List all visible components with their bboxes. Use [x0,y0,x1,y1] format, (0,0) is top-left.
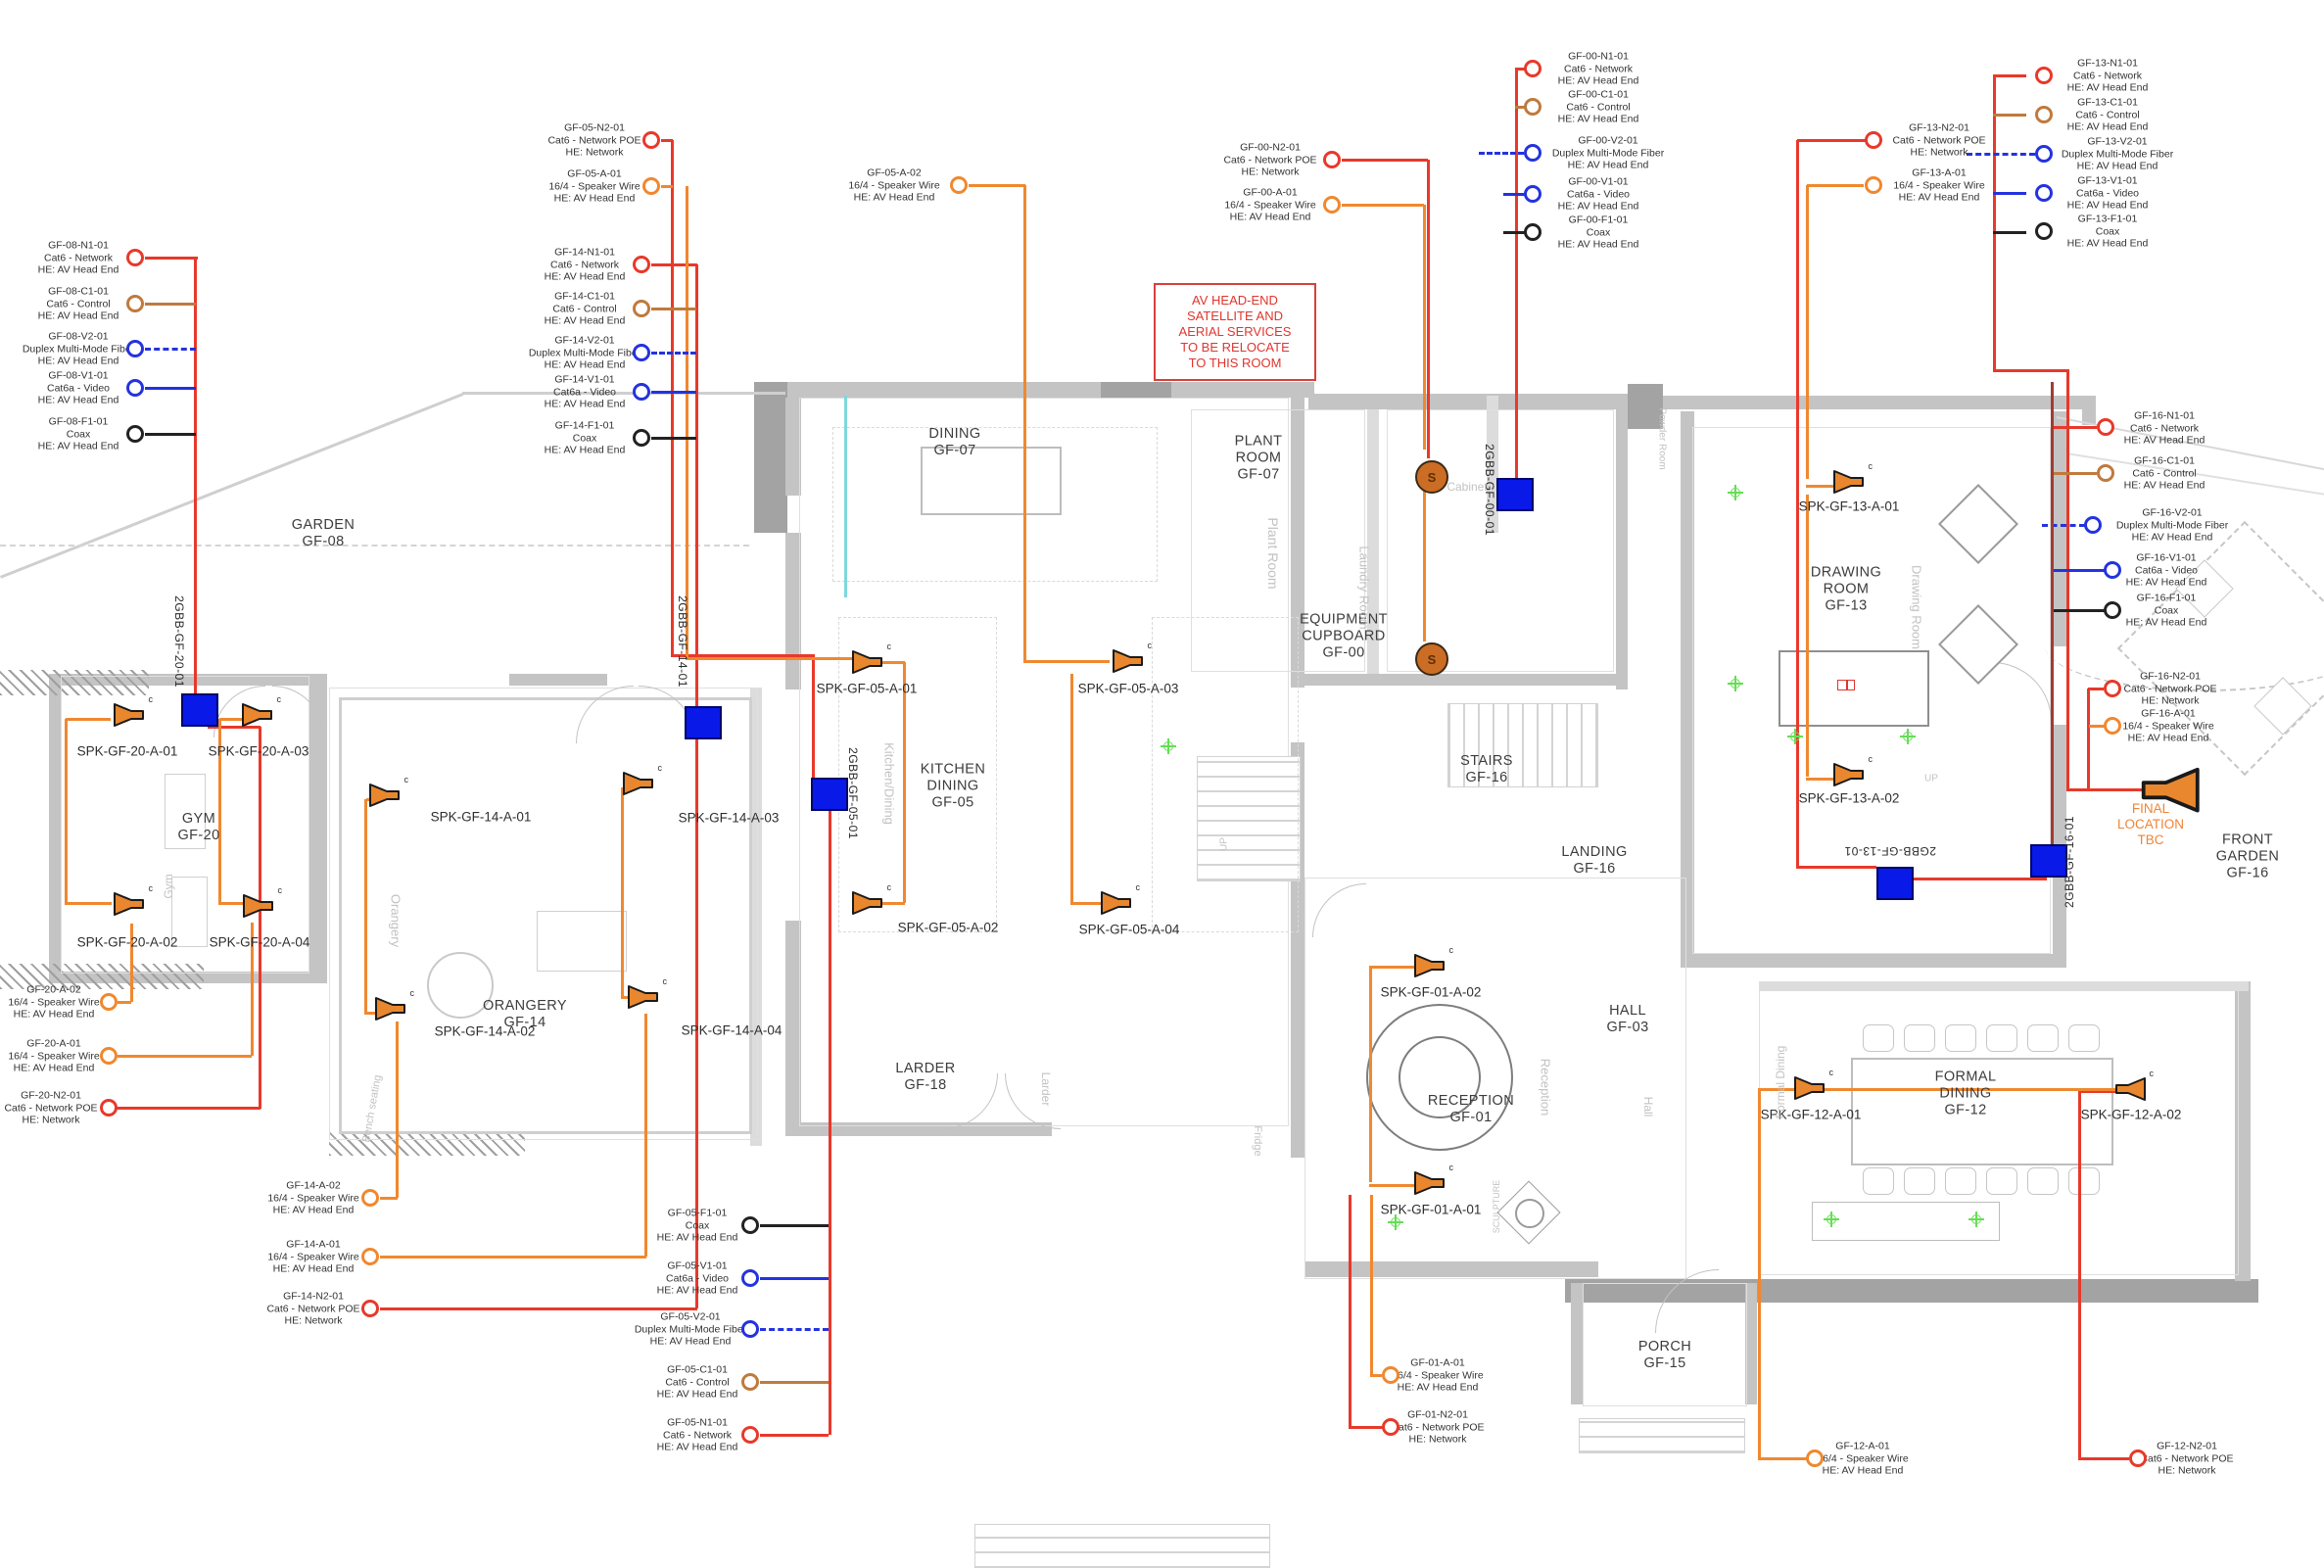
speaker-label: SPK-GF-20-A-04 [176,935,343,950]
faint-label: Laundry Room [1357,546,1372,629]
wire-segment [1369,966,1416,969]
cable-destination: HE: AV Head End [597,1335,783,1348]
warning-line: AV HEAD-END [1158,293,1312,309]
dining-chair [2027,1167,2059,1195]
cable-label: GF-00-V2-01Duplex Multi-Mode FiberHE: AV… [1515,134,1701,171]
room-label-dining: DININGGF-07 [928,426,980,459]
cable-label: GF-14-A-0216/4 - Speaker WireHE: AV Head… [220,1179,406,1216]
speaker-icon: c [1832,469,1866,495]
warning-line: TO BE RELOCATE [1158,340,1312,356]
faint-label: Kitchen/Dining [882,742,897,825]
wire-segment [364,799,367,1013]
wire-segment [621,787,624,997]
cable-type: Cat6 - Network [0,252,171,264]
cable-destination: HE: AV Head End [604,1231,790,1244]
cable-type: Duplex Multi-Mode Fiber [1515,147,1701,160]
speaker-label: SPK-GF-05-A-01 [783,682,950,696]
ceiling-light-marker [1900,729,1916,744]
cable-type: Cat6 - Control [492,303,678,315]
ceiling-light-marker [1388,1214,1403,1230]
dining-chair [2027,1024,2059,1052]
cable-label: GF-08-V1-01Cat6a - VideoHE: AV Head End [0,369,171,406]
cable-destination: HE: Network [2077,694,2263,707]
cable-code: GF-14-V2-01 [492,334,678,347]
speaker-label: SPK-GF-13-A-01 [1766,499,1932,514]
dining-chair [1945,1024,1976,1052]
cable-destination: HE: AV Head End [2079,531,2265,544]
speaker-ceiling-tag: c [1449,1163,1454,1172]
gbb-box [181,693,218,727]
room-label-drawing-room: DRAWINGROOMGF-13 [1811,565,1881,615]
room-label-stairs: STAIRSGF-16 [1460,753,1513,786]
cable-code: GF-12-N2-01 [2094,1440,2280,1452]
cable-code: GF-05-N2-01 [501,121,688,134]
gbb-label: 2GBB-GF-16-01 [2063,816,2076,908]
cable-destination: HE: AV Head End [604,1441,790,1453]
cable-destination: HE: Network [501,146,688,159]
cable-code: GF-16-F1-01 [2073,592,2259,604]
dining-chair [1986,1024,2017,1052]
cable-connector-ring [741,1320,759,1338]
cable-destination: HE: AV Head End [492,270,678,283]
wall [1308,394,1645,409]
cable-type: Coax [604,1219,790,1232]
ceiling-light-marker [1728,485,1743,500]
cable-connector-ring [126,425,144,443]
cable-type: Cat6 - Control [604,1376,790,1389]
cable-destination: HE: AV Head End [604,1388,790,1401]
cable-code: GF-20-A-02 [0,983,147,996]
room-label-formal-dining: FORMALDININGGF-12 [1935,1069,1997,1119]
cable-label: GF-16-V1-01Cat6a - VideoHE: AV Head End [2073,551,2259,589]
cable-code: GF-05-V2-01 [597,1310,783,1323]
dining-chair [1904,1024,1935,1052]
cable-connector-ring [2035,222,2053,240]
cable-destination: HE: AV Head End [492,398,678,410]
cable-label: GF-12-N2-01Cat6 - Network POEHE: Network [2094,1440,2280,1477]
satellite-node: S [1415,460,1448,494]
faint-label: Drawing Room [1910,565,1924,649]
cable-label: GF-14-N2-01Cat6 - Network POEHE: Network [220,1290,406,1327]
garden-fence-line [0,545,749,546]
cable-label: GF-05-N2-01Cat6 - Network POEHE: Network [501,121,688,159]
wire-segment [903,662,906,903]
cable-connector-ring [2104,680,2121,697]
floor-plan-canvas: AV HEAD-END SATELLITE AND AERIAL SERVICE… [0,0,2324,1568]
cable-type: Cat6a - Video [604,1272,790,1285]
room-label-equipment-cupboard: EQUIPMENTCUPBOARDGF-00 [1300,612,1388,662]
cable-connector-ring [2104,601,2121,619]
cable-destination: HE: AV Head End [492,314,678,327]
wall [785,382,1314,398]
ceiling-light-marker [1787,729,1803,744]
room-label-front-garden: FRONTGARDENGF-16 [2216,832,2279,882]
cable-label: GF-05-C1-01Cat6 - ControlHE: AV Head End [604,1363,790,1401]
room-label-plant-room: PLANTROOMGF-07 [1235,434,1283,484]
wire-segment [396,1022,399,1198]
gbb-label: 2GBB-GF-20-01 [172,595,186,688]
cable-type: Cat6 - Network [492,259,678,271]
cable-connector-ring [361,1248,379,1265]
speaker-ceiling-tag: c [663,976,668,986]
speaker-ceiling-tag: c [278,885,283,895]
dining-chair [1986,1167,2017,1195]
cable-destination: HE: AV Head End [1770,1464,1956,1477]
cable-destination: HE: AV Head End [2075,732,2261,744]
cable-label: GF-20-A-0116/4 - Speaker WireHE: AV Head… [0,1037,147,1074]
cable-connector-ring [100,993,118,1011]
cable-connector-ring [1524,98,1541,116]
wire-segment [695,264,698,721]
cable-code: GF-05-N1-01 [604,1416,790,1429]
cable-connector-ring [633,429,650,447]
cable-connector-ring [642,177,660,195]
warning-note: AV HEAD-END SATELLITE AND AERIAL SERVICE… [1154,283,1316,381]
cable-connector-ring [1524,185,1541,203]
cable-destination: HE: AV Head End [2073,616,2259,629]
wire-segment [881,661,905,664]
cable-connector-ring [2035,184,2053,202]
speaker-label: SPK-GF-12-A-02 [2048,1108,2214,1122]
warning-line: SATELLITE AND [1158,309,1312,324]
cable-destination: HE: Network [220,1314,406,1327]
cable-connector-ring [950,176,968,194]
terrace-steps [974,1524,1270,1568]
cable-connector-ring [633,256,650,273]
wire-segment [380,1256,646,1259]
speaker-icon: c [1413,1170,1447,1196]
dining-chair [1863,1024,1894,1052]
room-label-kitchen-dining: KITCHENDININGGF-05 [921,762,985,812]
cable-destination: HE: AV Head End [0,1008,147,1021]
wire-segment [686,657,852,660]
speaker-icon: c [113,891,146,917]
sofa-av-marker [1837,680,1855,690]
cable-destination: HE: Network [0,1114,144,1126]
speaker-ceiling-tag: c [1869,461,1873,471]
cable-destination: HE: AV Head End [2071,434,2257,447]
gbb-label: 2GBB-GF-13-01 [1844,844,1936,858]
cable-code: GF-14-N1-01 [492,246,678,259]
cable-type: Coax [0,428,171,441]
cable-label: GF-12-A-0116/4 - Speaker WireHE: AV Head… [1770,1440,1956,1477]
speaker-ceiling-tag: c [1829,1068,1834,1077]
wire-segment [1910,878,2047,880]
cable-type: Cat6 - Network POE [501,134,688,147]
cable-type: Cat6 - Network POE [220,1303,406,1315]
cable-label: GF-05-V1-01Cat6a - VideoHE: AV Head End [604,1259,790,1297]
room-label-larder: LARDERGF-18 [895,1061,955,1094]
wall [1101,382,1171,398]
wire-segment [1369,1184,1416,1187]
cable-type: 16/4 - Speaker Wire [0,1050,147,1063]
faint-label: UP [1219,837,1230,851]
cable-type: Duplex Multi-Mode Fiber [2024,148,2210,161]
cable-connector-ring [1524,60,1541,77]
wire-segment [1758,1089,1761,1458]
speaker-label: SPK-GF-12-A-01 [1728,1108,1894,1122]
dining-chair [1904,1167,1935,1195]
gbb-box [811,778,848,811]
cable-destination: HE: AV Head End [0,440,171,452]
wire-segment [1023,660,1110,663]
cable-label: GF-14-A-0116/4 - Speaker WireHE: AV Head… [220,1238,406,1275]
cable-connector-ring [741,1426,759,1444]
wire-segment [881,902,905,905]
faint-label: Orangery [389,894,403,947]
cable-type: Cat6 - Network [604,1429,790,1442]
wall [1681,954,2064,968]
cable-type: Cat6 - Network POE [1345,1421,1531,1434]
wall [1616,396,1628,689]
cable-code: GF-16-C1-01 [2071,454,2257,467]
cable-type: 16/4 - Speaker Wire [1345,1369,1531,1382]
cable-code: GF-00-V2-01 [1515,134,1701,147]
speaker-icon: c [1832,762,1866,787]
cable-code: GF-14-V1-01 [492,373,678,386]
cable-destination: HE: AV Head End [2071,479,2257,492]
cable-code: GF-05-V1-01 [604,1259,790,1272]
speaker-label: SPK-GF-14-A-03 [645,811,812,826]
cable-connector-ring [2097,418,2114,436]
speaker-icon: c [622,771,655,796]
cable-type: Cat6a - Video [0,382,171,395]
faint-label: Plant Room [1265,517,1281,589]
speaker-label: SPK-GF-13-A-02 [1766,791,1932,806]
cable-type: Coax [492,432,678,445]
cable-code: GF-05-A-01 [501,167,688,180]
cable-code: GF-01-N2-01 [1345,1408,1531,1421]
gbb-label: 2GBB-GF-05-01 [846,747,860,839]
cable-type: 16/4 - Speaker Wire [220,1251,406,1263]
speaker-icon: c [368,783,402,808]
faint-label: Reception [1539,1059,1553,1117]
speaker-icon: c [241,702,274,728]
speaker-icon: c [113,702,146,728]
wire-segment [2051,382,2054,859]
faint-label: SCULPTURE [1492,1180,1501,1234]
dining-chair [1863,1167,1894,1195]
speaker-icon: c [1413,953,1447,978]
cable-destination: HE: AV Head End [492,358,678,371]
speaker-label: SPK-GF-14-A-04 [648,1023,815,1038]
cable-type: 16/4 - Speaker Wire [501,180,688,193]
cable-connector-ring [1382,1366,1399,1384]
cable-connector-ring [741,1373,759,1391]
speaker-ceiling-tag: c [1869,754,1873,764]
final-line: TBC [2094,832,2207,848]
speaker-icon: c [627,984,660,1010]
cable-label: GF-08-C1-01Cat6 - ControlHE: AV Head End [0,285,171,322]
sculpture [1515,1199,1544,1228]
wall [1641,396,2084,409]
dining-chair [2068,1024,2100,1052]
cable-type: Cat6 - Network POE [0,1102,144,1115]
cable-type: Duplex Multi-Mode Fiber [492,347,678,359]
cable-type: Duplex Multi-Mode Fiber [0,343,171,356]
faint-label: Formal Dining [1774,1046,1787,1119]
cable-connector-ring [1323,151,1341,168]
speaker-label: SPK-GF-01-A-01 [1348,1203,1514,1217]
speaker-ceiling-tag: c [658,763,663,773]
cable-destination: HE: AV Head End [220,1204,406,1216]
speaker-ceiling-tag: c [149,694,154,704]
wire-segment [686,186,688,658]
cable-code: GF-14-A-02 [220,1179,406,1192]
speaker-icon: c [1100,890,1133,916]
cable-connector-ring [1524,144,1541,162]
wall [1571,1283,1583,1404]
cable-label: GF-16-V2-01Duplex Multi-Mode FiberHE: AV… [2079,506,2265,544]
cable-code: GF-01-A-01 [1345,1356,1531,1369]
cable-label: GF-08-N1-01Cat6 - NetworkHE: AV Head End [0,239,171,276]
cable-code: GF-13-V2-01 [2024,135,2210,148]
speaker-label: SPK-GF-05-A-02 [865,921,1031,935]
cable-destination: HE: AV Head End [0,1062,147,1074]
cable-code: GF-16-V2-01 [2079,506,2265,519]
wall [754,382,787,533]
cable-type: Cat6a - Video [492,386,678,399]
cable-label: GF-05-A-0116/4 - Speaker WireHE: AV Head… [501,167,688,205]
faint-label: Powder Room [1657,407,1668,469]
room-label-hall: HALLGF-03 [1606,1003,1648,1036]
cable-destination: HE: AV Head End [2073,576,2259,589]
speaker-ceiling-tag: c [1449,945,1454,955]
cable-connector-ring [2104,717,2121,735]
ceiling-light-marker [1968,1212,1984,1227]
wire-segment [66,718,111,721]
cable-connector-ring [741,1269,759,1287]
cable-code: GF-08-F1-01 [0,415,171,428]
wire-segment [65,902,112,905]
cable-destination: HE: AV Head End [0,263,171,276]
wire-segment [2066,369,2069,790]
faint-label: Fridge [1252,1125,1263,1156]
ceiling-light-marker [1728,676,1743,691]
cable-destination: HE: AV Head End [492,444,678,456]
cable-destination: HE: AV Head End [2024,160,2210,172]
wire-segment [1806,485,1833,488]
cable-code: GF-16-V1-01 [2073,551,2259,564]
wall [1303,674,1628,686]
speaker-icon [2138,766,2202,814]
cable-destination: HE: AV Head End [0,309,171,322]
cable-type: Cat6 - Control [0,298,171,310]
cable-connector-ring [2104,561,2121,579]
speaker-ceiling-tag: c [2150,1069,2155,1078]
cable-code: GF-14-F1-01 [492,419,678,432]
cable-connector-ring [1323,196,1341,214]
wire-segment [2078,1091,2081,1459]
faint-label: UP [1924,774,1938,784]
cable-label: GF-20-N2-01Cat6 - Network POEHE: Network [0,1089,144,1126]
wire-segment [1423,205,1426,450]
cable-label: GF-14-V2-01Duplex Multi-Mode FiberHE: AV… [492,334,678,371]
faint-label: Gym [162,874,175,898]
ceiling-light-marker [1824,1212,1839,1227]
speaker-label: SPK-GF-05-A-03 [1045,682,1211,696]
cable-connector-ring [1865,176,1882,194]
cable-destination: HE: Network [1345,1433,1531,1446]
cable-connector-ring [361,1300,379,1317]
cable-connector-ring [2097,464,2114,482]
speaker-ceiling-tag: c [404,775,409,784]
porch-steps [1579,1418,1745,1453]
wire-segment [829,808,831,1435]
ceiling-grid [1152,617,1299,932]
cable-connector-ring [126,295,144,312]
cable-label: GF-05-N1-01Cat6 - NetworkHE: AV Head End [604,1416,790,1453]
cable-type: Cat6a - Video [2073,564,2259,577]
cable-destination: HE: AV Head End [1515,159,1701,171]
warning-line: AERIAL SERVICES [1158,324,1312,340]
cable-label: GF-13-V2-01Duplex Multi-Mode FiberHE: AV… [2024,135,2210,172]
speaker-icon: c [851,890,884,916]
cable-type: 16/4 - Speaker Wire [1770,1452,1956,1465]
cable-label: GF-20-A-0216/4 - Speaker WireHE: AV Head… [0,983,147,1021]
cable-code: GF-14-N2-01 [220,1290,406,1303]
cable-code: GF-20-A-01 [0,1037,147,1050]
faint-label: Larder [1039,1072,1053,1107]
orangery-bench [537,911,627,972]
cable-connector-ring [633,300,650,317]
warning-line: TO THIS ROOM [1158,356,1312,371]
wire-segment [1423,490,1426,641]
speaker-icon: c [2113,1076,2147,1102]
wire-segment [194,258,197,708]
room-label-landing: LANDINGGF-16 [1561,844,1627,878]
speaker-icon: c [1112,648,1145,674]
cable-code: GF-16-N2-01 [2077,670,2263,683]
cable-code: GF-16-A-01 [2075,707,2261,720]
cable-connector-ring [741,1216,759,1234]
cable-type: Duplex Multi-Mode Fiber [2079,519,2265,532]
cable-label: GF-01-N2-01Cat6 - Network POEHE: Network [1345,1408,1531,1446]
cable-label: GF-05-F1-01CoaxHE: AV Head End [604,1207,790,1244]
wire-segment [1806,495,1809,777]
speaker-icon: c [242,893,275,919]
cable-code: GF-14-C1-01 [492,290,678,303]
cable-type: 16/4 - Speaker Wire [220,1192,406,1205]
wire-segment [1070,674,1073,903]
gbb-box [1496,478,1534,511]
cable-destination: HE: AV Head End [0,355,171,367]
final-line: LOCATION [2094,817,2207,832]
cable-code: GF-20-N2-01 [0,1089,144,1102]
cable-connector-ring [2035,145,2053,163]
cable-connector-ring [2035,67,2053,84]
gbb-box [685,706,722,739]
wire-segment [1427,160,1430,458]
cable-destination: HE: AV Head End [220,1262,406,1275]
cable-label: GF-08-V2-01Duplex Multi-Mode FiberHE: AV… [0,330,171,367]
speaker-icon: c [1793,1075,1826,1101]
cable-connector-ring [100,1099,118,1117]
speaker-ceiling-tag: c [887,882,892,892]
speaker-icon: c [851,649,884,675]
speaker-ceiling-tag: c [277,694,282,704]
cable-code: GF-14-A-01 [220,1238,406,1251]
wall [509,674,607,686]
wire-segment [1796,866,1876,869]
cable-connector-ring [126,340,144,357]
cable-label: GF-08-F1-01CoaxHE: AV Head End [0,415,171,452]
cable-connector-ring [633,344,650,361]
wire-segment [1515,69,1518,478]
dining-chair [2068,1167,2100,1195]
cable-destination: HE: Network [2094,1464,2280,1477]
wire-segment [812,654,815,780]
